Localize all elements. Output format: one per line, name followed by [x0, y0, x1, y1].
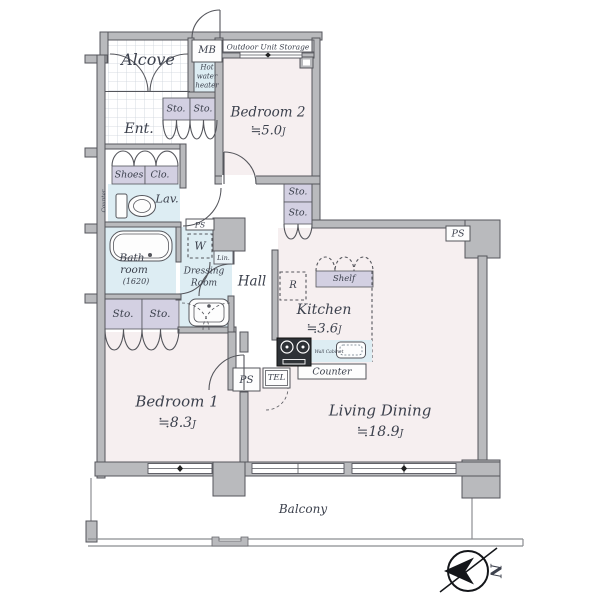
hot-water-heater-label: water: [197, 74, 217, 81]
bedroom2-label: Bedroom 2: [231, 106, 306, 120]
storage-label: Sto.: [150, 309, 171, 320]
north-label: N: [488, 564, 503, 578]
alcove-label: Alcove: [121, 52, 175, 68]
hall-label: Hall: [238, 275, 266, 289]
meter-box-label: MB: [198, 46, 216, 56]
outdoor-unit-storage-label: Outdoor Unit Storage: [227, 43, 310, 51]
linen-label: Lin.: [217, 254, 230, 261]
shoes-closet-label: Shoes: [115, 170, 144, 180]
storage-label: Sto.: [167, 104, 186, 114]
dressing-room-label: Room: [191, 280, 217, 289]
balcony-label: Balcony: [279, 503, 327, 515]
bedroom1-area: ≒8.3J: [158, 416, 196, 430]
pipe-space-label: PS: [452, 229, 465, 239]
pipe-space-label: PS: [239, 374, 253, 385]
toilet-icon: [116, 194, 156, 218]
washer-label: W: [194, 241, 205, 252]
living-dining-label: Living Dining: [329, 404, 432, 419]
shoes-closet-label: Clo.: [151, 170, 170, 180]
dressing-room-label: Dressing: [184, 268, 225, 277]
wall-cabinet-label: Wall Cabinet: [314, 350, 343, 355]
pipe-space-label: PS: [195, 221, 205, 229]
bathroom-label: Bath: [120, 253, 145, 264]
telephone-label: TEL: [268, 373, 286, 382]
bedroom1-label: Bedroom 1: [135, 395, 218, 410]
floor-plan: Alcove MB Outdoor Unit Storage Hot water…: [0, 0, 600, 600]
entrance-label: Ent.: [124, 122, 153, 136]
lavatory-label: Lav.: [155, 193, 178, 205]
bathroom-size-label: (1620): [123, 278, 150, 286]
refrigerator-label: R: [289, 281, 297, 291]
lav-counter-label: Counter: [102, 190, 108, 213]
hot-water-heater-label: heater: [195, 83, 218, 90]
bathroom-label: room: [120, 265, 148, 276]
storage-label: Sto.: [113, 309, 134, 320]
counter-label: Counter: [312, 367, 351, 377]
stove-icon: [277, 338, 311, 366]
storage-label: Sto.: [194, 104, 213, 114]
hot-water-heater-label: Hot: [200, 65, 213, 72]
shelf-label: Shelf: [333, 275, 355, 284]
kitchen-label: Kitchen: [297, 303, 352, 317]
storage-label: Sto.: [289, 208, 308, 218]
kitchen-area: ≒3.6J: [306, 323, 341, 336]
bedroom2-area: ≒5.0J: [250, 125, 285, 138]
storage-label: Sto.: [289, 187, 308, 197]
living-dining-area: ≒18.9J: [357, 425, 404, 439]
